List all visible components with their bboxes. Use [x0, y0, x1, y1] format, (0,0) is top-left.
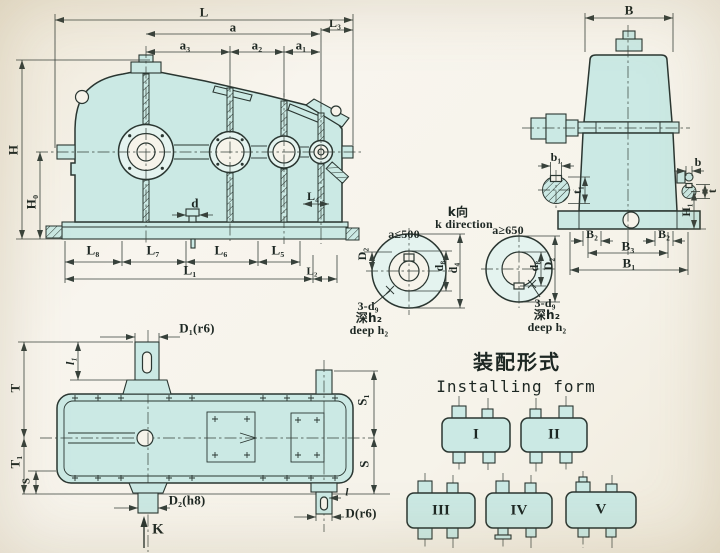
- form-label-2: II: [548, 428, 560, 443]
- installing-forms-drawing: [407, 396, 636, 548]
- k-view-left-condition: a≤500: [388, 228, 420, 240]
- dim-label-S-left: S: [22, 478, 33, 484]
- dim-label-B: B: [625, 4, 634, 17]
- dim-label-B1: B₁: [623, 257, 636, 270]
- dim-label-d: d: [191, 197, 198, 210]
- dim-label-b: b: [695, 156, 702, 168]
- installing-form-title-en: Installing form: [436, 379, 596, 395]
- dim-label-L8: L₈: [87, 244, 100, 257]
- depth-label-en-left: deep h₂: [350, 324, 389, 336]
- dim-label-H0: H₀: [25, 195, 38, 209]
- k-view-title-en: k direction: [435, 218, 493, 230]
- dim-label-D2-right-circle: D₂: [542, 258, 554, 271]
- dim-label-t: t: [706, 189, 718, 193]
- installing-form-title-cn: 装配形式: [473, 352, 561, 372]
- dim-label-B3: B₃: [622, 240, 635, 253]
- form-label-3: III: [432, 504, 450, 519]
- dim-label-B2-right: B₂: [658, 228, 670, 240]
- dim-label-L6: L₆: [215, 244, 228, 257]
- dim-label-a: a: [230, 21, 237, 34]
- depth-label-en-right: deep h₂: [528, 321, 567, 333]
- dim-label-L7: L₇: [147, 244, 160, 257]
- dim-label-L2: L₂: [306, 267, 317, 278]
- dim-label-D2h8: D₂(h8): [169, 494, 206, 507]
- k-view-right-condition: a≥650: [492, 224, 524, 236]
- dim-label-B2-left: B₂: [586, 228, 598, 240]
- dim-label-Dr6: D(r6): [345, 507, 376, 520]
- dim-label-L5: L₅: [272, 244, 285, 257]
- dim-label-H: H: [7, 145, 20, 155]
- dim-label-a1: a₁: [296, 39, 307, 52]
- drawing-linework: [0, 0, 720, 553]
- dim-label-L: L: [200, 6, 209, 19]
- form-label-5: V: [595, 503, 606, 518]
- dim-label-H1: H₁: [680, 203, 692, 216]
- dim-label-b1: b₁: [551, 151, 562, 163]
- dim-label-t1: t₁: [571, 186, 583, 194]
- dim-label-l1: l₁: [64, 357, 76, 365]
- form-label-1: I: [473, 428, 479, 443]
- dim-label-a3: a₃: [180, 39, 191, 52]
- dim-label-d8-left-circle: d₈: [433, 261, 445, 272]
- dim-label-L4: L₄: [307, 190, 319, 202]
- dim-label-T: T: [9, 384, 22, 393]
- gearbox-technical-drawing: L a L₃ a₃ a₂ a₁ H H₀ d L₄ L₈ L₇ L₆ L₅ L₁…: [0, 0, 720, 553]
- dim-label-D2-left-circle: D₂: [356, 248, 368, 261]
- dim-label-S1: S₁: [356, 394, 369, 406]
- dim-label-S-right: S: [358, 460, 371, 467]
- dim-label-T1: T₁: [9, 456, 22, 469]
- dim-label-L1: L₁: [184, 264, 197, 277]
- k-arrow-label: K: [152, 523, 164, 538]
- side-view-drawing: [16, 14, 364, 283]
- dim-label-a2: a₂: [252, 39, 263, 52]
- dim-label-D1r6: D₁(r6): [179, 322, 214, 335]
- form-label-4: IV: [510, 504, 527, 519]
- dim-label-d8-right-circle: d₈: [528, 261, 540, 272]
- dim-label-l: l: [345, 488, 348, 499]
- dim-label-L3: L₃: [329, 17, 341, 29]
- dim-label-d4-left-circle: d₄: [447, 263, 459, 274]
